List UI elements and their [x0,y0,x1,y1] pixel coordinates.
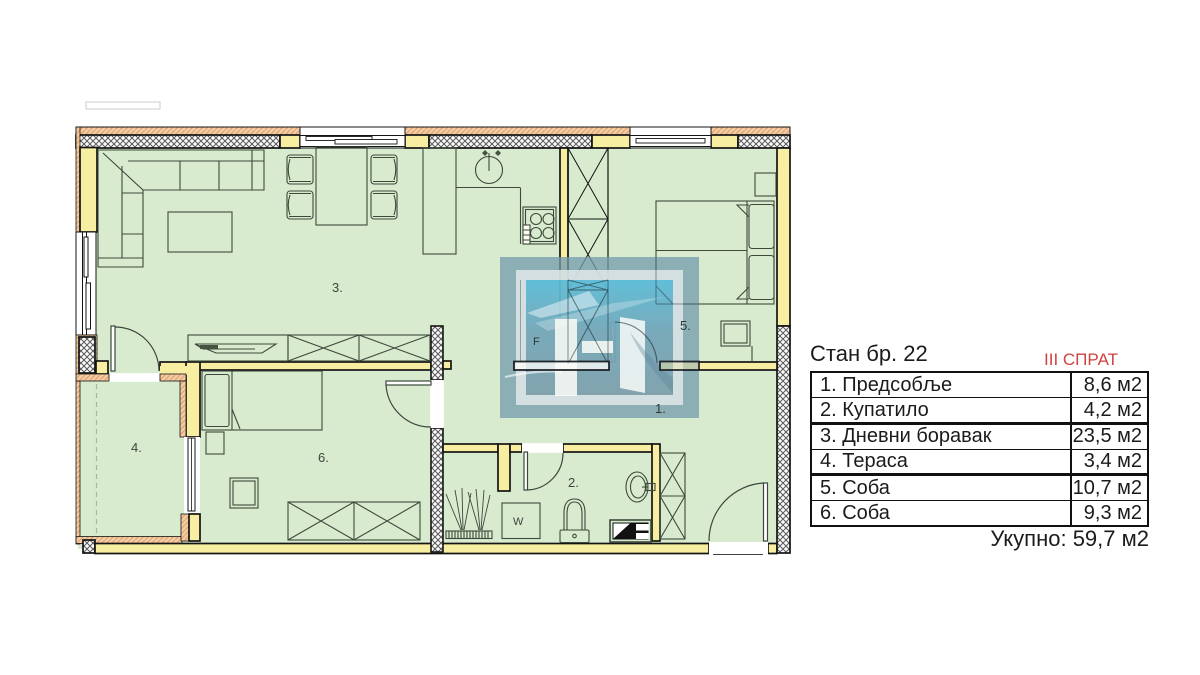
svg-text:F: F [533,336,540,348]
svg-text:2.: 2. [568,475,579,490]
svg-text:6.: 6. [318,450,329,465]
svg-text:5.: 5. [680,318,691,333]
svg-text:3.: 3. [332,280,343,295]
svg-text:4.: 4. [131,440,142,455]
svg-text:W: W [513,516,524,528]
svg-text:1.: 1. [655,401,666,416]
